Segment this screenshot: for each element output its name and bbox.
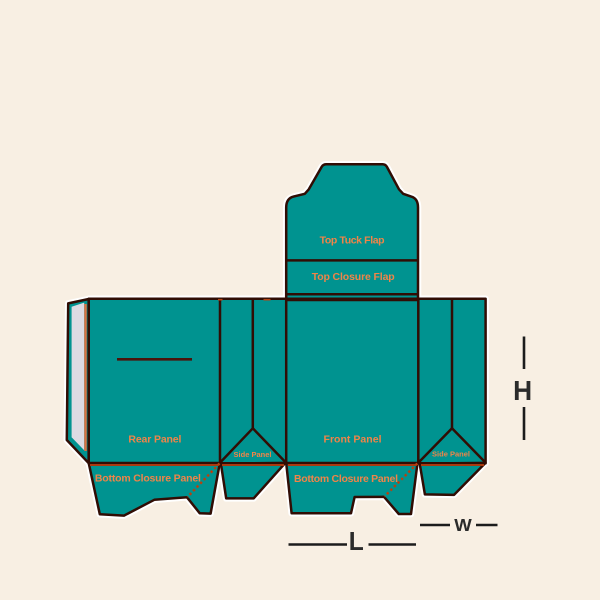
svg-text:Rear Panel: Rear Panel	[128, 434, 181, 446]
svg-text:H: H	[513, 375, 532, 406]
svg-text:Side Panel: Side Panel	[432, 450, 470, 459]
svg-text:L: L	[349, 526, 364, 556]
svg-text:Top Closure Flap: Top Closure Flap	[312, 271, 395, 283]
svg-text:Bottom Closure Panel: Bottom Closure Panel	[294, 473, 398, 485]
svg-text:Side Panel: Side Panel	[234, 450, 272, 459]
svg-text:Front Panel: Front Panel	[324, 434, 382, 446]
svg-text:Top Tuck Flap: Top Tuck Flap	[320, 235, 385, 247]
svg-text:Bottom Closure Panel: Bottom Closure Panel	[95, 473, 201, 485]
svg-text:W: W	[454, 515, 472, 535]
